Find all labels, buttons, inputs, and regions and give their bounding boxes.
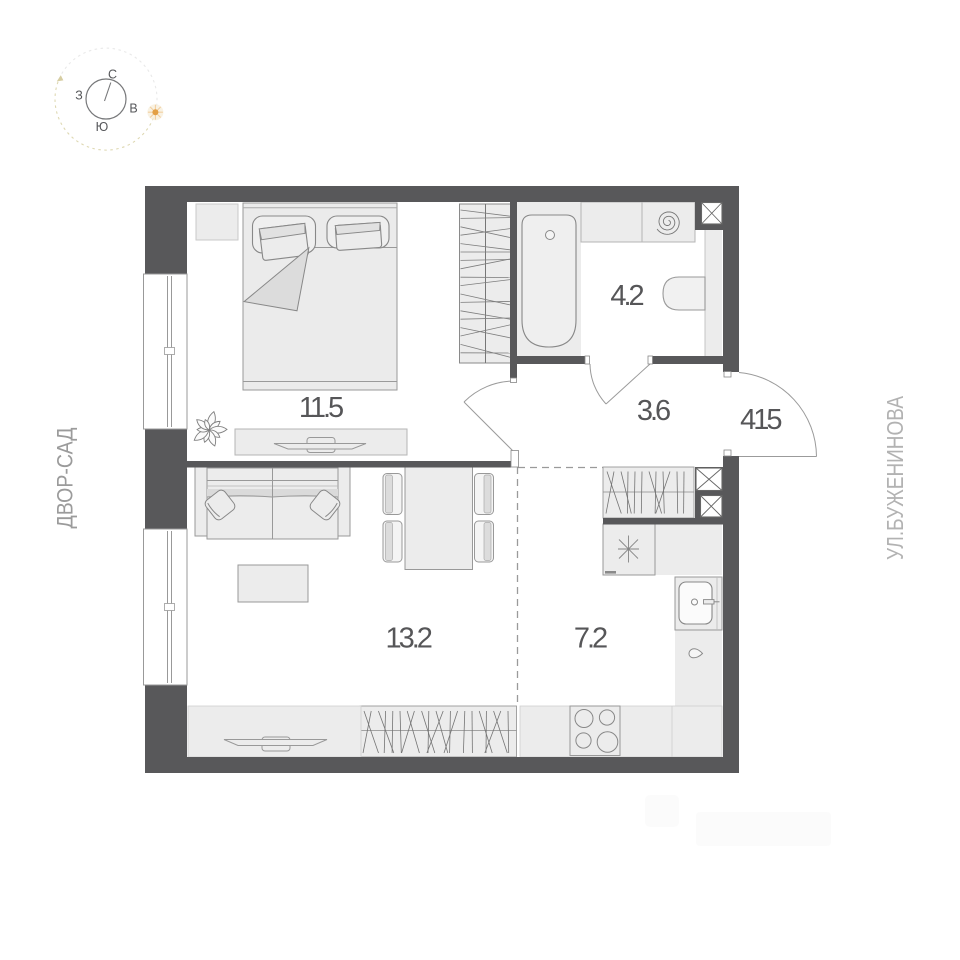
svg-text:13.2: 13.2 <box>385 623 431 655</box>
svg-text:11.5: 11.5 <box>299 392 343 424</box>
svg-text:415: 415 <box>740 404 781 436</box>
svg-text:3.6: 3.6 <box>637 395 670 427</box>
svg-text:4.2: 4.2 <box>610 280 643 312</box>
svg-text:З: З <box>75 89 83 103</box>
svg-text:Ю: Ю <box>96 120 109 134</box>
svg-text:УЛ.БУЖЕНИНОВА: УЛ.БУЖЕНИНОВА <box>882 395 908 560</box>
svg-text:С: С <box>108 68 117 82</box>
svg-text:7.2: 7.2 <box>574 623 607 655</box>
svg-text:ДВОР-САД: ДВОР-САД <box>53 427 78 528</box>
svg-text:В: В <box>129 102 137 116</box>
